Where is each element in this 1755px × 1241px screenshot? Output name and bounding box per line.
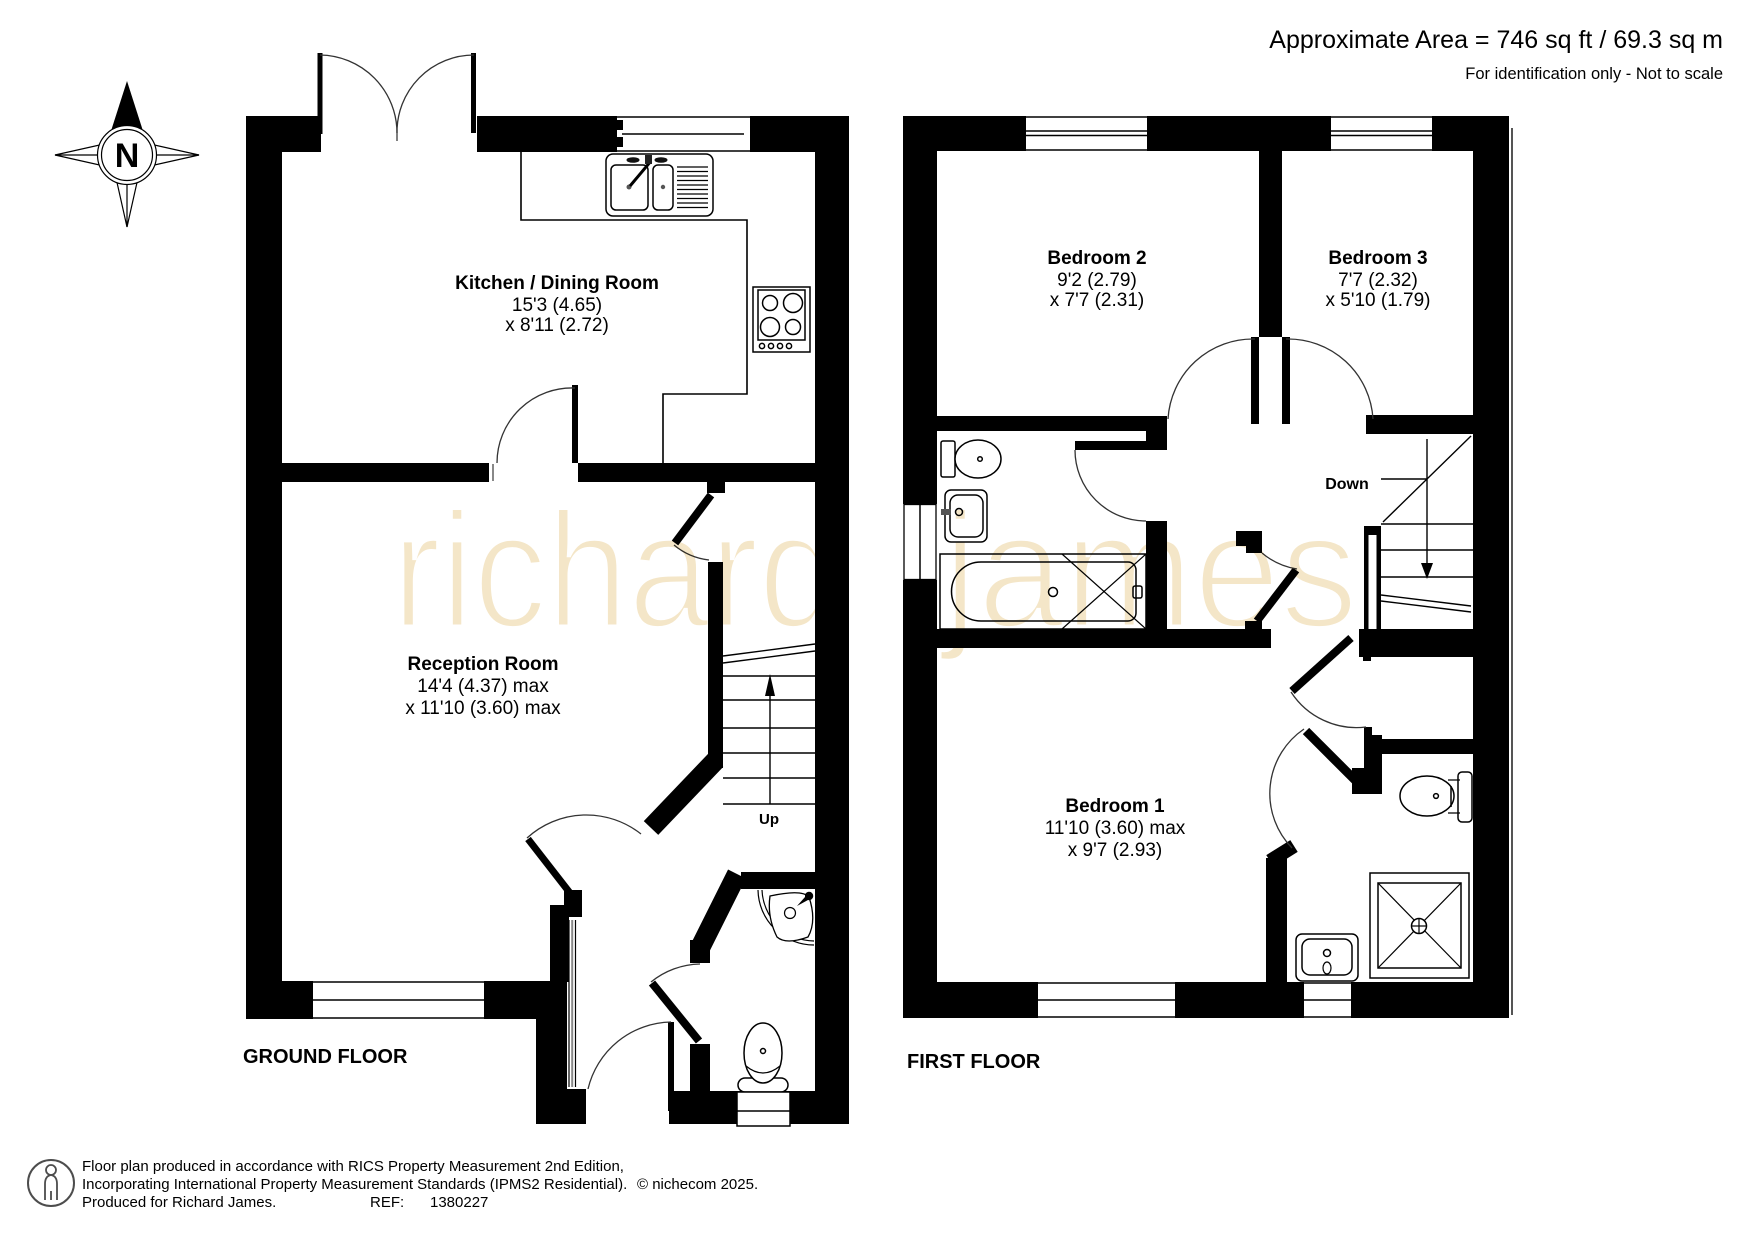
- svg-text:x 5'10 (1.79): x 5'10 (1.79): [1325, 290, 1430, 311]
- svg-text:7'7 (2.32): 7'7 (2.32): [1338, 270, 1418, 291]
- svg-text:11'10 (3.60) max: 11'10 (3.60) max: [1045, 818, 1186, 839]
- svg-text:james: james: [938, 478, 1358, 662]
- svg-text:9'2 (2.79): 9'2 (2.79): [1057, 270, 1137, 291]
- svg-text:Bedroom 3: Bedroom 3: [1328, 248, 1427, 269]
- svg-text:Bedroom 1: Bedroom 1: [1065, 796, 1165, 817]
- svg-text:Produced for Richard James.: Produced for Richard James.: [82, 1194, 276, 1211]
- svg-text:Approximate Area = 746 sq ft /: Approximate Area = 746 sq ft / 69.3 sq m: [1269, 26, 1723, 54]
- svg-text:REF:: REF:: [370, 1194, 404, 1211]
- svg-text:15'3 (4.65): 15'3 (4.65): [512, 295, 602, 316]
- svg-text:Up: Up: [759, 811, 779, 828]
- svg-text:x 11'10 (3.60) max: x 11'10 (3.60) max: [405, 698, 561, 719]
- svg-text:Bedroom 2: Bedroom 2: [1047, 248, 1146, 269]
- svg-text:1380227: 1380227: [430, 1194, 488, 1211]
- svg-text:For identification only - Not: For identification only - Not to scale: [1465, 65, 1723, 83]
- svg-text:Kitchen / Dining Room: Kitchen / Dining Room: [455, 273, 659, 294]
- svg-text:x 7'7 (2.31): x 7'7 (2.31): [1050, 290, 1144, 311]
- svg-text:N: N: [115, 137, 140, 175]
- svg-text:© nichecom 2025.: © nichecom 2025.: [637, 1176, 758, 1193]
- svg-text:Floor plan produced in accorda: Floor plan produced in accordance with R…: [82, 1158, 624, 1175]
- svg-text:14'4 (4.37) max: 14'4 (4.37) max: [417, 676, 549, 697]
- svg-text:Incorporating International Pr: Incorporating International Property Mea…: [82, 1176, 627, 1193]
- svg-text:x 9'7 (2.93): x 9'7 (2.93): [1068, 840, 1162, 861]
- svg-text:FIRST FLOOR: FIRST FLOOR: [907, 1051, 1041, 1073]
- svg-text:GROUND FLOOR: GROUND FLOOR: [243, 1046, 408, 1068]
- svg-text:richard: richard: [392, 478, 840, 662]
- svg-text:x 8'11 (2.72): x 8'11 (2.72): [505, 315, 609, 336]
